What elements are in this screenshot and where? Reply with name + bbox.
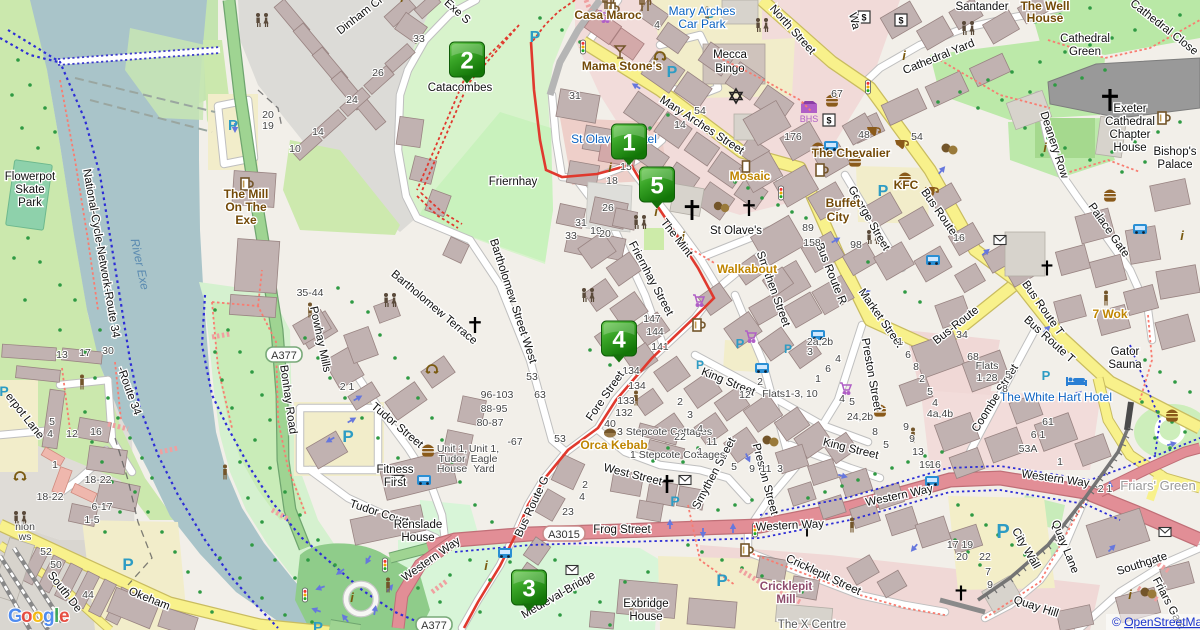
svg-text:98: 98 bbox=[850, 239, 862, 251]
svg-text:i: i bbox=[608, 160, 612, 175]
svg-text:141: 141 bbox=[651, 341, 669, 353]
svg-text:$: $ bbox=[861, 13, 866, 23]
svg-text:i: i bbox=[400, 0, 404, 5]
svg-text:Santander: Santander bbox=[955, 1, 1008, 13]
svg-text:P: P bbox=[670, 493, 679, 509]
svg-text:Cathedral: Cathedral bbox=[1105, 116, 1155, 128]
svg-text:Cricklepit: Cricklepit bbox=[760, 581, 813, 593]
svg-text:24,2b: 24,2b bbox=[847, 411, 873, 423]
svg-text:3: 3 bbox=[777, 463, 783, 475]
svg-text:68: 68 bbox=[967, 351, 979, 363]
svg-text:i: i bbox=[484, 558, 488, 573]
svg-text:3: 3 bbox=[522, 576, 535, 603]
svg-text:144: 144 bbox=[646, 326, 664, 338]
svg-text:St Olave's: St Olave's bbox=[710, 225, 762, 237]
svg-text:18: 18 bbox=[606, 175, 618, 187]
svg-text:54: 54 bbox=[911, 131, 923, 143]
svg-text:2 1: 2 1 bbox=[1098, 483, 1113, 495]
svg-text:P: P bbox=[1042, 368, 1051, 383]
svg-text:The Chevalier: The Chevalier bbox=[812, 146, 891, 160]
svg-text:133: 133 bbox=[617, 395, 635, 407]
svg-text:Skate: Skate bbox=[15, 184, 44, 196]
svg-text:89: 89 bbox=[802, 222, 814, 234]
svg-text:6-17: 6-17 bbox=[91, 501, 112, 513]
svg-text:5: 5 bbox=[1005, 369, 1011, 381]
svg-text:5: 5 bbox=[883, 439, 889, 451]
svg-text:17 19: 17 19 bbox=[947, 539, 973, 551]
svg-text:i: i bbox=[1180, 228, 1184, 243]
svg-text:First: First bbox=[384, 477, 407, 489]
svg-text:ws: ws bbox=[18, 531, 32, 543]
svg-text:24: 24 bbox=[346, 94, 358, 106]
svg-text:Walkabout: Walkabout bbox=[717, 262, 777, 276]
svg-text:54: 54 bbox=[694, 105, 706, 117]
svg-text:33: 33 bbox=[413, 33, 425, 45]
svg-text:22: 22 bbox=[674, 431, 686, 443]
svg-text:P: P bbox=[996, 521, 1009, 543]
svg-text:1: 1 bbox=[52, 459, 58, 471]
svg-text:23: 23 bbox=[562, 506, 574, 518]
svg-text:16: 16 bbox=[953, 232, 965, 244]
svg-text:Exe: Exe bbox=[235, 213, 257, 227]
svg-text:P: P bbox=[878, 183, 889, 200]
svg-text:31: 31 bbox=[569, 90, 581, 102]
svg-text:A377: A377 bbox=[271, 350, 297, 362]
svg-text:11: 11 bbox=[707, 436, 718, 448]
svg-text:6 1: 6 1 bbox=[1031, 429, 1046, 441]
svg-text:8: 8 bbox=[872, 426, 878, 438]
svg-text:On The: On The bbox=[225, 200, 267, 214]
svg-text:Park: Park bbox=[18, 197, 42, 209]
svg-text:9: 9 bbox=[749, 463, 755, 475]
svg-text:P: P bbox=[342, 427, 353, 446]
svg-text:Fitness: Fitness bbox=[376, 464, 413, 476]
svg-text:30: 30 bbox=[102, 345, 114, 357]
svg-text:P: P bbox=[736, 336, 745, 351]
svg-text:Palace: Palace bbox=[1157, 159, 1192, 171]
svg-text:26: 26 bbox=[602, 202, 614, 214]
svg-text:House: House bbox=[437, 463, 468, 475]
svg-text:40: 40 bbox=[604, 418, 616, 430]
svg-text:2: 2 bbox=[919, 373, 925, 385]
svg-text:Mecca: Mecca bbox=[713, 49, 747, 61]
svg-text:50: 50 bbox=[50, 559, 62, 571]
svg-text:i: i bbox=[350, 590, 354, 605]
svg-text:Green: Green bbox=[1069, 46, 1101, 58]
svg-text:13: 13 bbox=[912, 446, 924, 458]
svg-text:1 Stepcote Cottages: 1 Stepcote Cottages bbox=[630, 449, 725, 461]
svg-text:Chapter: Chapter bbox=[1110, 129, 1151, 141]
svg-text:City: City bbox=[827, 210, 850, 224]
svg-text:Friars' Green: Friars' Green bbox=[1120, 478, 1195, 493]
svg-text:2: 2 bbox=[582, 479, 588, 491]
svg-text:House: House bbox=[629, 611, 662, 623]
svg-text:Flats1-3, 10: Flats1-3, 10 bbox=[762, 388, 818, 400]
svg-text:Renslade: Renslade bbox=[394, 519, 443, 531]
svg-text:9: 9 bbox=[903, 421, 909, 433]
svg-text:$: $ bbox=[898, 16, 903, 26]
svg-text:House: House bbox=[1113, 142, 1146, 154]
svg-text:134: 134 bbox=[628, 380, 646, 392]
svg-text:53A: 53A bbox=[1019, 443, 1038, 455]
svg-text:Gator: Gator bbox=[1111, 346, 1140, 358]
svg-text:o: o bbox=[32, 606, 44, 627]
svg-text:4: 4 bbox=[697, 423, 703, 435]
svg-text:2: 2 bbox=[757, 376, 763, 388]
svg-text:4: 4 bbox=[839, 393, 845, 405]
svg-text:4: 4 bbox=[835, 353, 841, 365]
svg-text:16: 16 bbox=[90, 426, 102, 438]
svg-text:1: 1 bbox=[815, 373, 821, 385]
svg-text:88-95: 88-95 bbox=[481, 403, 508, 415]
svg-text:6: 6 bbox=[905, 349, 911, 361]
svg-text:158: 158 bbox=[803, 237, 821, 249]
svg-text:A3015: A3015 bbox=[548, 529, 580, 541]
svg-text:7: 7 bbox=[985, 566, 991, 578]
svg-text:8: 8 bbox=[913, 361, 919, 373]
svg-text:Bishop's: Bishop's bbox=[1153, 146, 1196, 158]
svg-text:1: 1 bbox=[897, 336, 903, 348]
svg-text:9: 9 bbox=[909, 433, 915, 445]
svg-text:12: 12 bbox=[66, 428, 78, 440]
svg-text:2: 2 bbox=[460, 48, 473, 75]
svg-text:19: 19 bbox=[262, 120, 274, 132]
svg-text:61: 61 bbox=[1042, 416, 1054, 428]
svg-text:P: P bbox=[716, 571, 727, 590]
svg-text:12: 12 bbox=[739, 389, 751, 401]
svg-text:5: 5 bbox=[731, 461, 737, 473]
svg-text:P: P bbox=[667, 64, 678, 81]
svg-text:1: 1 bbox=[1057, 456, 1063, 468]
svg-text:33: 33 bbox=[565, 230, 577, 242]
svg-text:Exbridge: Exbridge bbox=[623, 598, 668, 610]
svg-text:P: P bbox=[313, 619, 323, 630]
svg-text:3: 3 bbox=[807, 346, 813, 358]
svg-text:4: 4 bbox=[654, 19, 660, 31]
svg-text:g: g bbox=[43, 606, 55, 627]
svg-text:1: 1 bbox=[622, 130, 635, 157]
svg-text:1-5: 1-5 bbox=[84, 514, 99, 526]
svg-text:Catacombes: Catacombes bbox=[428, 82, 493, 94]
svg-text:o: o bbox=[21, 606, 33, 627]
svg-text:53: 53 bbox=[554, 433, 566, 445]
svg-text:176: 176 bbox=[784, 131, 802, 143]
svg-text:26: 26 bbox=[372, 67, 384, 79]
svg-text:22: 22 bbox=[979, 551, 991, 563]
svg-text:10: 10 bbox=[289, 143, 301, 155]
svg-text:53: 53 bbox=[526, 371, 538, 383]
svg-text:2: 2 bbox=[677, 396, 683, 408]
svg-text:48: 48 bbox=[858, 129, 870, 141]
svg-text:Cathedral: Cathedral bbox=[1060, 33, 1110, 45]
svg-text:P: P bbox=[228, 117, 238, 134]
svg-text:35-44: 35-44 bbox=[297, 287, 324, 299]
svg-text:Friernhay: Friernhay bbox=[489, 176, 538, 188]
svg-text:P: P bbox=[530, 29, 541, 46]
svg-text:The Mill: The Mill bbox=[224, 187, 269, 201]
svg-text:e: e bbox=[59, 606, 70, 627]
svg-text:i: i bbox=[1043, 140, 1047, 155]
svg-text:4a,4b: 4a,4b bbox=[927, 408, 953, 420]
svg-text:Sauna: Sauna bbox=[1108, 359, 1142, 371]
svg-text:18-22: 18-22 bbox=[37, 491, 64, 503]
svg-text:Car Park: Car Park bbox=[678, 17, 726, 31]
svg-text:20: 20 bbox=[956, 551, 968, 563]
svg-text:Mama Stone's: Mama Stone's bbox=[582, 59, 663, 73]
svg-text:20: 20 bbox=[599, 228, 611, 240]
svg-text:34: 34 bbox=[956, 329, 968, 341]
svg-text:132: 132 bbox=[615, 407, 633, 419]
svg-text:13: 13 bbox=[56, 349, 68, 361]
svg-text:Casa Maroc: Casa Maroc bbox=[574, 8, 642, 22]
svg-text:80-87: 80-87 bbox=[477, 417, 504, 429]
svg-text:$: $ bbox=[826, 116, 831, 126]
svg-text:The X Centre: The X Centre bbox=[778, 619, 846, 630]
svg-text:A377: A377 bbox=[421, 620, 447, 630]
svg-text:3: 3 bbox=[687, 409, 693, 421]
svg-text:44: 44 bbox=[82, 589, 94, 601]
svg-text:Flats: Flats bbox=[976, 360, 999, 372]
svg-text:147: 147 bbox=[643, 313, 661, 325]
svg-text:i: i bbox=[1128, 587, 1132, 602]
svg-text:House: House bbox=[1027, 11, 1064, 25]
svg-text:7 Wok: 7 Wok bbox=[1092, 307, 1127, 321]
svg-text:House: House bbox=[401, 532, 434, 544]
svg-text:14: 14 bbox=[674, 119, 686, 131]
svg-text:17: 17 bbox=[79, 347, 91, 359]
svg-text:Buffet: Buffet bbox=[826, 196, 861, 210]
svg-text:Frog Street: Frog Street bbox=[593, 524, 651, 536]
svg-text:Mary Arches: Mary Arches bbox=[669, 4, 736, 18]
svg-text:BHS: BHS bbox=[800, 114, 819, 124]
svg-text:Exeter: Exeter bbox=[1113, 103, 1146, 115]
svg-text:96-103: 96-103 bbox=[481, 389, 514, 401]
svg-text:6: 6 bbox=[825, 363, 831, 375]
svg-text:18-22: 18-22 bbox=[85, 474, 112, 486]
svg-text:52: 52 bbox=[40, 546, 52, 558]
svg-text:11: 11 bbox=[761, 463, 772, 475]
svg-text:5: 5 bbox=[849, 396, 855, 408]
svg-text:The White Hart Hotel: The White Hart Hotel bbox=[1000, 390, 1112, 404]
svg-text:9: 9 bbox=[987, 579, 993, 591]
svg-text:5: 5 bbox=[49, 416, 55, 428]
svg-text:i: i bbox=[902, 48, 906, 63]
svg-text:Yard: Yard bbox=[473, 463, 495, 475]
svg-text:63: 63 bbox=[534, 389, 546, 401]
svg-text:Mill: Mill bbox=[776, 594, 795, 606]
svg-text:2 1: 2 1 bbox=[340, 381, 355, 393]
svg-text:Flowerpot: Flowerpot bbox=[5, 171, 56, 183]
svg-text:P: P bbox=[122, 555, 133, 574]
svg-text:1: 1 bbox=[697, 446, 703, 458]
svg-text:8: 8 bbox=[1002, 383, 1008, 395]
svg-text:-67: -67 bbox=[507, 436, 522, 448]
svg-text:4: 4 bbox=[47, 428, 53, 440]
svg-text:KFC: KFC bbox=[894, 178, 919, 192]
svg-text:16: 16 bbox=[929, 459, 941, 471]
svg-text:© OpenStreetMap: © OpenStreetMap bbox=[1112, 615, 1200, 629]
svg-text:31: 31 bbox=[575, 217, 587, 229]
svg-text:67: 67 bbox=[831, 88, 843, 100]
svg-text:1-28: 1-28 bbox=[976, 372, 997, 384]
svg-text:5: 5 bbox=[650, 173, 663, 200]
svg-text:14: 14 bbox=[312, 126, 324, 138]
svg-text:P: P bbox=[784, 342, 792, 356]
svg-text:4: 4 bbox=[579, 491, 585, 503]
svg-text:4: 4 bbox=[612, 327, 626, 354]
